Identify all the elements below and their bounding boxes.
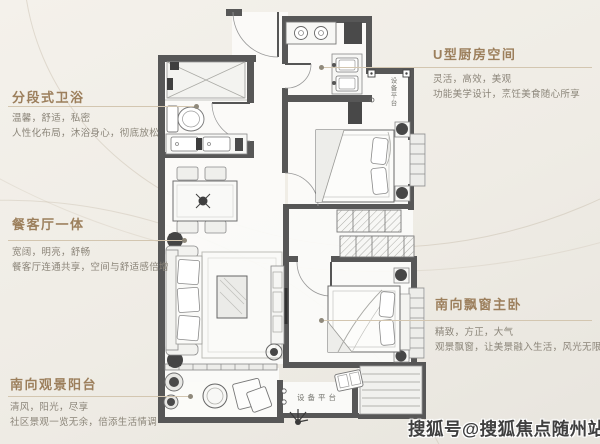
callout-kitchen-title: U型厨房空间 [433,44,516,63]
callout-balcony-title: 南向观景阳台 [10,374,97,393]
callout-kitchen: U型厨房空间 灵活，高效，美观 功能美学设计，烹饪美食随心所享 [433,44,516,63]
callout-kitchen-line1: 灵活，高效，美观 [433,72,580,87]
callout-bathroom-line1: 温馨，舒适，私密 [12,111,159,126]
callout-master-title: 南向飘窗主卧 [435,294,522,313]
callout-master-line2: 观景飘窗，让美景融入生活，风光无限 [435,340,600,355]
callout-dining-title: 餐客厅一体 [12,214,85,233]
leader-dot [319,318,324,323]
leader-dot [188,394,193,399]
leader-dot [319,65,324,70]
leader-dot [194,104,199,109]
callout-dining-line2: 餐客厅连通共享，空间与舒适感倍增 [12,260,169,275]
leader-dot [182,238,187,243]
equipment-platform-label-top: 设备平台 [387,77,397,107]
leader-dining [8,240,186,241]
callout-balcony: 南向观景阳台 清风，阳光，尽享 社区景观一览无余，倍添生活情调 [10,374,97,393]
leader-master [320,320,592,321]
leader-balcony [8,396,192,397]
callout-master-line1: 精致，方正，大气 [435,325,600,340]
callout-balcony-line2: 社区景观一览无余，倍添生活情调 [10,415,157,430]
callout-dining: 餐客厅一体 宽阔，明亮，舒畅 餐客厅连通共享，空间与舒适感倍增 [12,214,85,233]
callout-kitchen-line2: 功能美学设计，烹饪美食随心所享 [433,87,580,102]
callout-bathroom-title: 分段式卫浴 [12,87,85,106]
leader-kitchen [320,67,592,68]
equipment-platform-label-bottom: 设备平台 [297,392,339,403]
callout-bathroom-line2: 人性化布局，沐浴身心，彻底放松 [12,126,159,141]
callout-balcony-line1: 清风，阳光，尽享 [10,400,157,415]
floorplan-page: 设备平台 设备平台 分段式卫浴 温馨，舒适，私密 人性化布局，沐浴身心，彻底放松… [0,0,600,444]
callout-dining-line1: 宽阔，明亮，舒畅 [12,245,169,260]
watermark-text: 搜狐号@搜狐焦点随州站 [408,416,600,441]
callout-master: 南向飘窗主卧 精致，方正，大气 观景飘窗，让美景融入生活，风光无限 [435,294,522,313]
callout-bathroom: 分段式卫浴 温馨，舒适，私密 人性化布局，沐浴身心，彻底放松 [12,87,85,106]
